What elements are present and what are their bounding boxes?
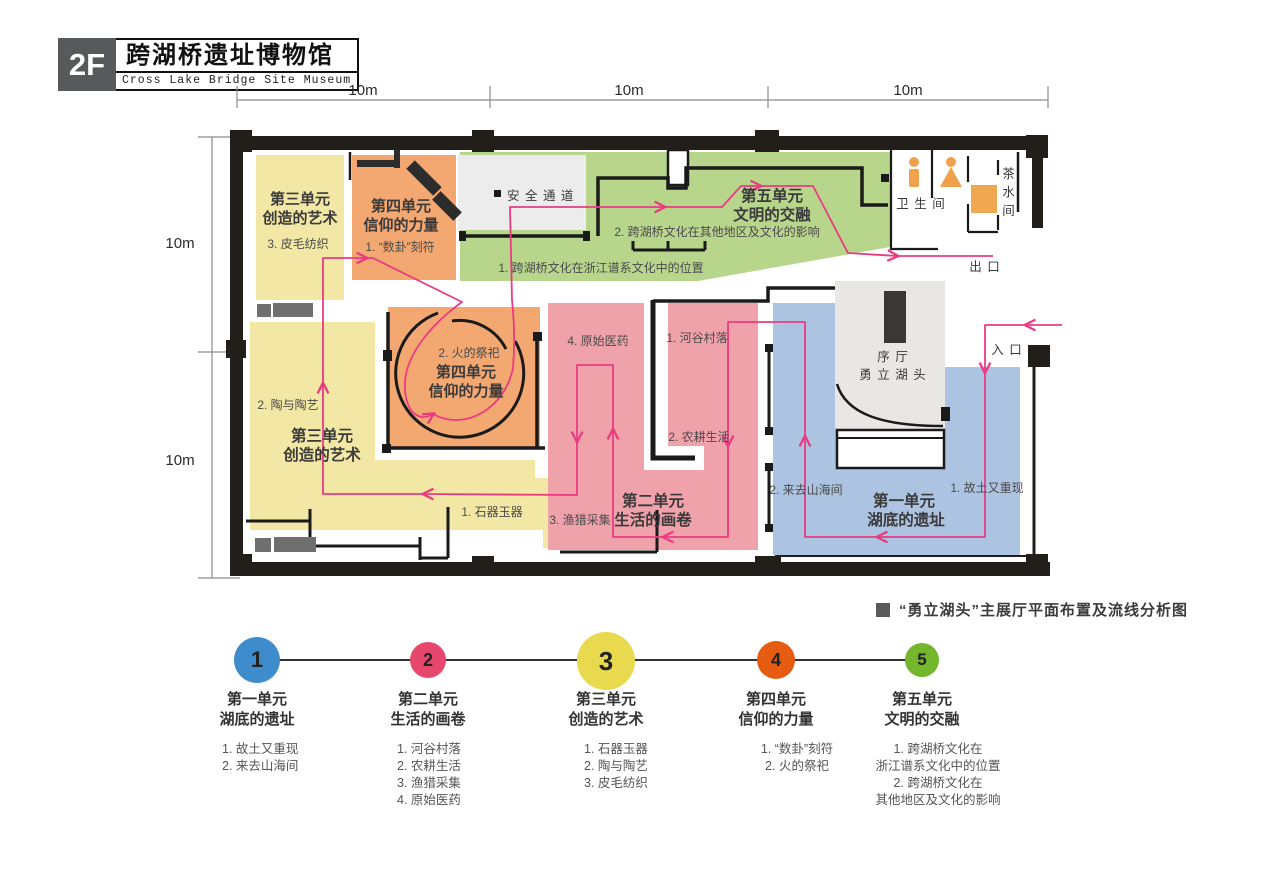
legend-circle-2: 2 [410, 642, 446, 678]
legend-list-item: 2. 陶与陶艺 [584, 758, 648, 775]
label-hall-line1: 序 厅 [877, 349, 908, 364]
caption-square-icon [876, 603, 890, 617]
label-unit2-item2: 2. 农耕生活 [668, 429, 729, 444]
label-unit1-line2: 湖底的遗址 [867, 510, 945, 529]
label-unit3-main-item2: 2. 陶与陶艺 [257, 397, 318, 412]
legend-list-item: 2. 火的祭祀 [737, 758, 857, 775]
restroom-icons [909, 157, 962, 187]
legend-list-3: 1. 石器玉器 2. 陶与陶艺 3. 皮毛纺织 [584, 741, 648, 792]
caption-text: “勇立湖头”主展厅平面布置及流线分析图 [899, 599, 1188, 620]
label-unit5-line1: 第五单元 [741, 186, 804, 205]
label-tea-room: 茶水间 [1000, 166, 1014, 223]
museum-floorplan-page: 2F 跨湖桥遗址博物馆 Cross Lake Bridge Site Museu… [0, 0, 1269, 887]
label-restroom: 卫 生 间 [896, 197, 945, 211]
legend-list-item: 1. 石器玉器 [584, 741, 648, 758]
legend-list-item: 浙江谱系文化中的位置 [858, 758, 1018, 775]
legend-title-1-line1: 第一单元 [187, 690, 327, 710]
label-unit2-item3: 3. 渔猎采集 [549, 512, 610, 527]
unit2-white-slot-v [644, 296, 668, 470]
label-unit5-item1: 1. 跨湖桥文化在浙江谱系文化中的位置 [498, 260, 703, 275]
floor-plan: 10m 10m 10m 10m 10m [0, 0, 1269, 625]
legend-title-4: 第四单元 信仰的力量 [706, 690, 846, 730]
legend-list-4: 1. “数卦”刻符 2. 火的祭祀 [737, 741, 857, 775]
safe-passage-square-icon [494, 190, 501, 197]
legend-circle-1: 1 [234, 637, 280, 683]
legend-list-item: 4. 原始医药 [397, 792, 461, 809]
label-unit3-top-item: 3. 皮毛纺织 [267, 237, 328, 251]
legend-number-4: 4 [771, 650, 781, 671]
label-unit1-line1: 第一单元 [873, 491, 936, 510]
legend-title-1: 第一单元 湖底的遗址 [187, 690, 327, 730]
label-unit1-item2: 2. 来去山海间 [769, 482, 842, 497]
legend-title-5-line1: 第五单元 [852, 690, 992, 710]
male-icon [909, 157, 919, 187]
legend-title-2-line2: 生活的画卷 [358, 710, 498, 730]
label-unit3-main-line2: 创造的艺术 [282, 445, 361, 464]
label-unit5-line2: 文明的交融 [733, 205, 811, 224]
label-hall-line2: 勇 立 湖 头 [859, 367, 926, 382]
label-safe-passage: 安 全 通 道 [507, 188, 574, 203]
label-unit4-top-line2: 信仰的力量 [363, 216, 438, 234]
legend-title-5: 第五单元 文明的交融 [852, 690, 992, 730]
dim-left-1: 10m [165, 235, 194, 252]
entrance-white-corner [943, 303, 1020, 367]
zone-unit3-top-yellow [256, 155, 344, 300]
legend-list-item: 1. 故土又重现 [222, 741, 298, 758]
legend-list-item: 其他地区及文化的影响 [858, 792, 1018, 809]
label-unit4-main-line2: 信仰的力量 [428, 382, 503, 400]
legend-title-4-line1: 第四单元 [706, 690, 846, 710]
dim-top-3: 10m [893, 82, 922, 99]
label-unit1-item1: 1. 故土又重现 [950, 480, 1023, 495]
female-icon [940, 157, 962, 187]
legend-list-item: 3. 皮毛纺织 [584, 775, 648, 792]
legend-title-3-line1: 第三单元 [536, 690, 676, 710]
legend-circle-5: 5 [905, 643, 939, 677]
legend-title-5-line2: 文明的交融 [852, 710, 992, 730]
legend-list-5: 1. 跨湖桥文化在 浙江谱系文化中的位置 2. 跨湖桥文化在 其他地区及文化的影… [858, 741, 1018, 809]
legend-number-1: 1 [251, 647, 263, 673]
label-entrance: 入 口 [991, 343, 1022, 357]
dim-top-1: 10m [348, 82, 377, 99]
legend-list-1: 1. 故土又重现 2. 来去山海间 [222, 741, 298, 775]
dim-left-2: 10m [165, 452, 194, 469]
legend-circle-3: 3 [577, 632, 635, 690]
legend-list-item: 1. 跨湖桥文化在 [858, 741, 1018, 758]
legend-list-2: 1. 河谷村落 2. 农耕生活 3. 渔猎采集 4. 原始医药 [397, 741, 461, 809]
label-unit4-main-item: 2. 火的祭祀 [438, 345, 499, 360]
legend-title-1-line2: 湖底的遗址 [187, 710, 327, 730]
plan-caption: “勇立湖头”主展厅平面布置及流线分析图 [876, 599, 1188, 620]
label-unit4-main-line1: 第四单元 [436, 363, 496, 381]
legend-circle-4: 4 [757, 641, 795, 679]
label-unit2-line1: 第二单元 [622, 491, 685, 510]
legend-title-2: 第二单元 生活的画卷 [358, 690, 498, 730]
legend-number-2: 2 [423, 650, 433, 671]
label-unit2-item1: 1. 河谷村落 [666, 331, 727, 345]
label-unit3-main-item1: 1. 石器玉器 [461, 505, 522, 519]
label-exit: 出 口 [969, 260, 1000, 274]
label-unit2-item4: 4. 原始医药 [567, 334, 628, 348]
label-unit3-top-line2: 创造的艺术 [261, 209, 337, 227]
legend-number-5: 5 [917, 650, 926, 670]
label-unit4-top-line1: 第四单元 [371, 197, 431, 215]
legend-number-3: 3 [599, 646, 613, 677]
label-unit3-main-line1: 第三单元 [291, 426, 354, 445]
legend-list-item: 1. 河谷村落 [397, 741, 461, 758]
legend-list-item: 1. “数卦”刻符 [737, 741, 857, 758]
legend-title-3-line2: 创造的艺术 [536, 710, 676, 730]
legend-list-item: 2. 跨湖桥文化在 [858, 775, 1018, 792]
legend-list-item: 2. 农耕生活 [397, 758, 461, 775]
dim-top-2: 10m [614, 82, 643, 99]
legend-title-4-line2: 信仰的力量 [706, 710, 846, 730]
label-unit3-top-line1: 第三单元 [270, 190, 330, 208]
legend-list-item: 3. 渔猎采集 [397, 775, 461, 792]
legend-list-item: 2. 来去山海间 [222, 758, 298, 775]
legend-title-3: 第三单元 创造的艺术 [536, 690, 676, 730]
label-unit2-line2: 生活的画卷 [614, 510, 692, 529]
legend-title-2-line1: 第二单元 [358, 690, 498, 710]
label-unit4-top-item: 1. “数卦”刻符 [365, 239, 434, 254]
label-unit5-item2: 2. 跨湖桥文化在其他地区及文化的影响 [614, 224, 819, 239]
